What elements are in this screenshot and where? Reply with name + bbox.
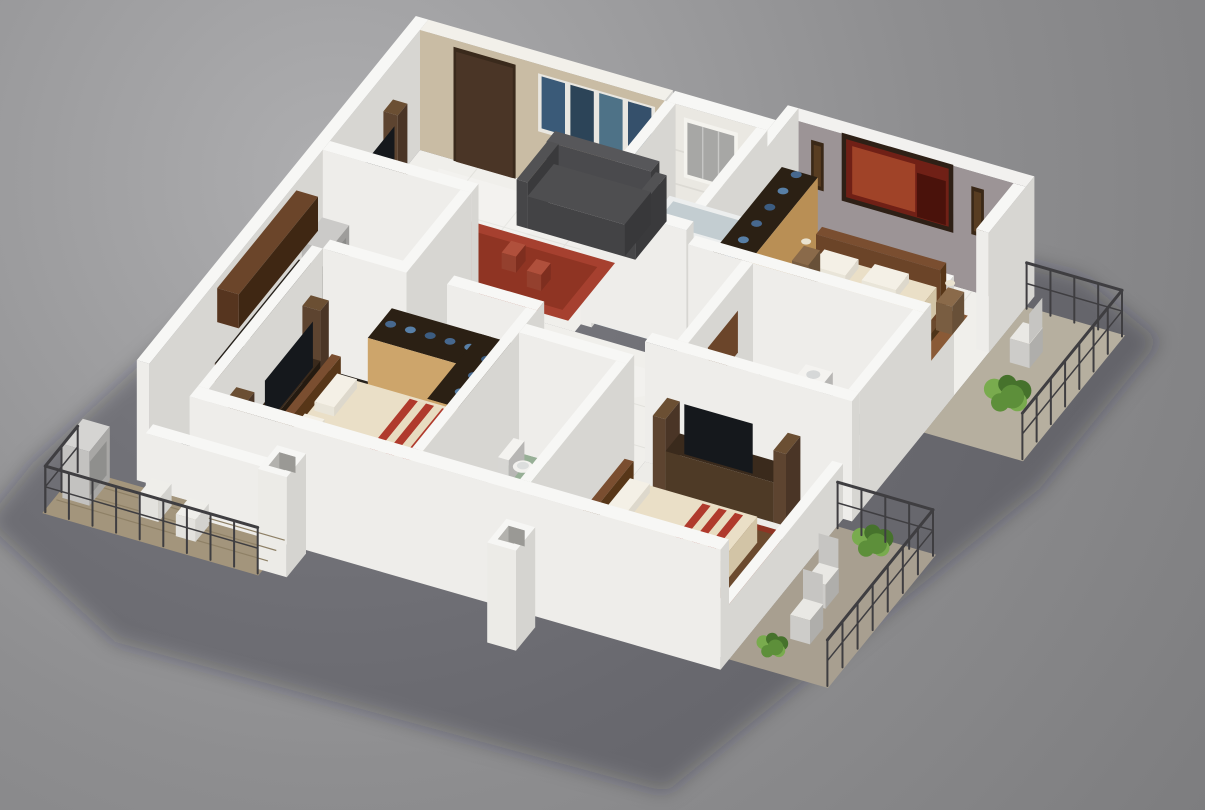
tv-unit-tower-sw-face (653, 416, 666, 492)
wardrobe-jar (778, 188, 789, 195)
table-lamp (801, 238, 811, 244)
wardrobe-jar (764, 204, 775, 211)
toilet-bowl-inner (517, 462, 529, 469)
wall-south-outer-se-face (721, 539, 729, 669)
entrance-door (456, 52, 513, 178)
tv-unit-tower-sw-face (773, 450, 786, 526)
sink-basin (806, 370, 820, 379)
wardrobe-jar (751, 220, 762, 227)
floor-plan-svg (0, 0, 1205, 810)
table-lamp (945, 280, 955, 286)
wall-bedroom-3-north-se-face (852, 393, 859, 522)
wall-master-east-a-sw-face (976, 229, 989, 353)
wall-art-panel (542, 76, 565, 135)
balcony-plant-foliage (866, 533, 887, 554)
wardrobe-jar (405, 326, 416, 333)
wardrobe-jar (385, 321, 396, 328)
wardrobe-jar (445, 338, 456, 345)
master-painting-shade (917, 173, 946, 225)
nightstand-sw-face (936, 302, 952, 335)
balcony-plant-foliage (1000, 385, 1024, 409)
wardrobe-jar (738, 236, 749, 243)
wall-art-panel (599, 93, 622, 152)
floor-plan-scene (0, 0, 1205, 810)
sofa-arm-sw-face (517, 179, 528, 228)
kitchen-upper-cabinets-sw-face (217, 288, 239, 328)
parapet-column-sw-face (258, 469, 287, 577)
wardrobe-jar (425, 332, 436, 339)
wall-art-panel (570, 85, 593, 144)
wall-master-south-se-face (924, 304, 931, 433)
window-bar (702, 127, 703, 179)
parapet-column-sw-face (487, 543, 516, 651)
wardrobe-jar (791, 171, 802, 178)
balcony-plant-foliage (768, 640, 784, 656)
